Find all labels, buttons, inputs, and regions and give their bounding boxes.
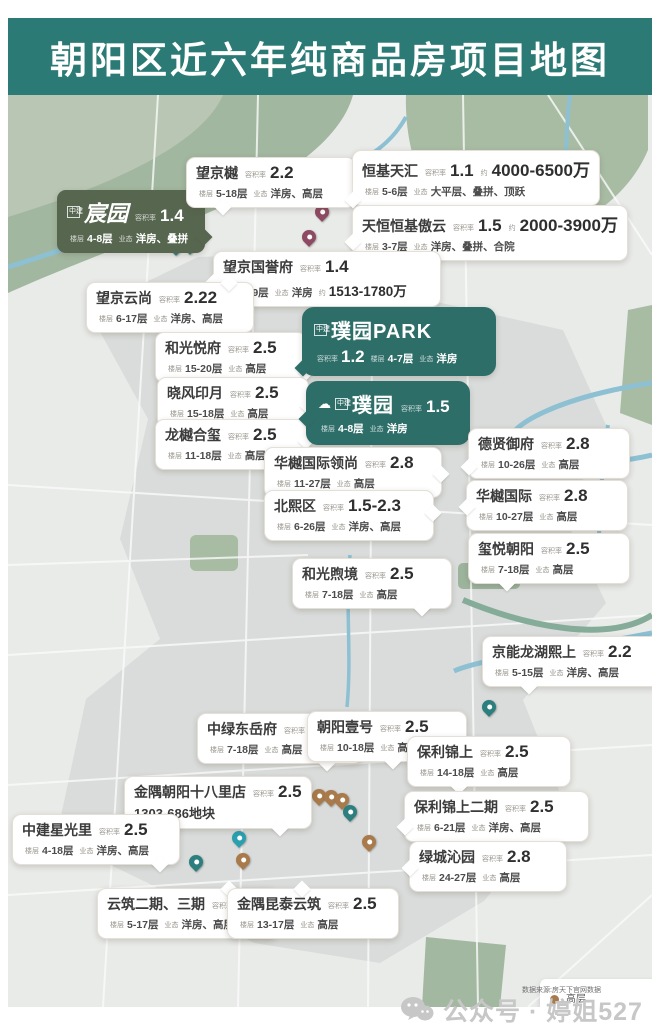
type-label: 业态 — [154, 314, 168, 324]
floors-label: 楼层 — [479, 512, 493, 522]
project-name: 晓风印月 — [167, 383, 223, 403]
far-value: 1.1 — [450, 161, 474, 181]
project-title-row: 金隅昆泰云筑容积率2.5 — [237, 894, 389, 914]
type-value: 高层 — [553, 562, 574, 577]
floors-label: 楼层 — [99, 314, 113, 324]
far-value: 2.5 — [253, 338, 277, 358]
far-value: 2.8 — [507, 847, 531, 867]
park-area — [190, 535, 238, 571]
project-spec-row: 楼层7-18层业态高层 — [302, 587, 442, 602]
type-value: 大平层、叠拼、顶跃 — [431, 184, 526, 199]
project-title-row: 朝阳壹号容积率2.5 — [317, 717, 457, 737]
type-label: 业态 — [119, 234, 133, 244]
floors-label: 楼层 — [70, 234, 84, 244]
floors-value: 6-26层 — [294, 519, 326, 534]
project-title-row: 玺悦朝阳容积率2.5 — [478, 539, 620, 559]
project-callout[interactable]: 金隅昆泰云筑容积率2.5楼层13-17层业态高层 — [227, 888, 399, 939]
type-value: 洋房 — [436, 351, 457, 366]
far-label: 容积率 — [365, 460, 386, 470]
project-spec-row: 楼层4-8层业态洋房 — [318, 421, 458, 436]
far-value: 2.5 — [530, 797, 554, 817]
project-title-row: 绿城沁园容积率2.8 — [419, 847, 557, 867]
far-label: 容积率 — [425, 168, 446, 178]
floors-label: 楼层 — [481, 565, 495, 575]
floors-label: 楼层 — [481, 460, 495, 470]
cloud-icon: ☁ — [318, 396, 331, 412]
project-callout[interactable]: 德贤御府容积率2.8楼层10-26层业态高层 — [468, 428, 630, 479]
project-title-row: 华樾国际容积率2.8 — [476, 486, 618, 506]
project-spec-row: 楼层4-18层业态洋房、高层 — [22, 843, 170, 858]
far-label: 容积率 — [300, 264, 321, 274]
project-title-row: 德贤御府容积率2.8 — [478, 434, 620, 454]
floors-label: 楼层 — [321, 424, 335, 434]
far-label: 容积率 — [401, 404, 422, 414]
project-name: 天恒恒基傲云 — [362, 216, 446, 236]
project-name: 和光煦境 — [302, 564, 358, 584]
project-spec-row: 楼层24-27层业态高层 — [419, 870, 557, 885]
floors-label: 楼层 — [25, 846, 39, 856]
far-value: 2.5 — [566, 539, 590, 559]
project-spec-row: 楼层6-26层业态洋房、高层 — [274, 519, 424, 534]
floors-label: 楼层 — [199, 189, 213, 199]
type-value: 洋房、高层 — [349, 519, 402, 534]
project-title-row: 望京樾容积率2.2 — [196, 163, 346, 183]
wechat-icon — [400, 996, 434, 1024]
floors-value: 7-18层 — [227, 742, 259, 757]
far-label: 容积率 — [135, 213, 156, 223]
project-name: 绿城沁园 — [419, 847, 475, 867]
far-label: 容积率 — [228, 345, 249, 355]
project-title-row: 天恒恒基傲云容积率1.5约2000-3900万 — [362, 211, 618, 236]
far-value: 2.8 — [390, 453, 414, 473]
type-label: 业态 — [80, 846, 94, 856]
project-name: 和光悦府 — [165, 338, 221, 358]
project-callout[interactable]: 绿城沁园容积率2.8楼层24-27层业态高层 — [409, 841, 567, 892]
project-name: 中建星光里 — [22, 820, 92, 840]
project-spec-row: 楼层6-21层业态洋房、高层 — [414, 820, 579, 835]
project-title-row: 中建璞园PARK — [314, 315, 484, 344]
far-value: 1.5 — [478, 216, 502, 236]
far-value: 2.5 — [124, 820, 148, 840]
type-value: 洋房、高层 — [489, 820, 542, 835]
far-label: 容积率 — [159, 295, 180, 305]
project-title-row: 京能龙湖熙上容积率2.2 — [492, 642, 652, 662]
type-label: 业态 — [539, 512, 553, 522]
type-value: 高层 — [497, 765, 518, 780]
project-title-row: 恒基天汇容积率1.1约4000-6500万 — [362, 156, 590, 181]
floors-label: 楼层 — [371, 354, 385, 364]
type-value: 高层 — [377, 587, 398, 602]
page: 朝阳区近六年纯商品房项目地图 — [0, 0, 660, 1033]
type-label: 业态 — [332, 522, 346, 532]
project-title-row: 和光悦府容积率2.5 — [165, 338, 297, 358]
project-name: 金隅昆泰云筑 — [237, 894, 321, 914]
project-spec-row: 楼层10-27层业态高层 — [476, 509, 618, 524]
far-value: 2.8 — [564, 486, 588, 506]
far-label: 容积率 — [253, 789, 274, 799]
type-label: 业态 — [380, 743, 394, 753]
project-spec-row: 楼层10-26层业态高层 — [478, 457, 620, 472]
type-value: 高层 — [317, 917, 338, 932]
project-callout[interactable]: 京能龙湖熙上容积率2.2楼层5-15层业态洋房、高层 — [482, 636, 652, 687]
project-name: 云筑二期、三期 — [107, 894, 205, 914]
project-name: 望京云尚 — [96, 288, 152, 308]
floors-value: 5-18层 — [216, 186, 248, 201]
type-value: 高层 — [556, 509, 577, 524]
project-spec-row: 容积率1.2楼层4-7层业态洋房 — [314, 347, 484, 367]
project-title-row: 北熙区容积率1.5-2.3 — [274, 496, 424, 516]
type-label: 业态 — [414, 187, 428, 197]
far-label: 容积率 — [328, 901, 349, 911]
project-title-row: 保利锦上二期容积率2.5 — [414, 797, 579, 817]
project-title-row: 望京国誉府容积率1.4 — [223, 257, 431, 277]
project-spec-row: 楼层11-27层业态高层 — [274, 476, 432, 491]
approx-label: 约 — [481, 168, 488, 178]
far-value: 2.5 — [255, 383, 279, 403]
floors-value: 5-15层 — [512, 665, 544, 680]
project-name: 保利锦上 — [417, 742, 473, 762]
project-name: 华樾国际 — [476, 486, 532, 506]
floors-label: 楼层 — [210, 745, 224, 755]
project-callout[interactable]: 望京云尚容积率2.22楼层6-17层业态洋房、高层 — [86, 282, 254, 333]
type-label: 业态 — [254, 189, 268, 199]
far-value: 2.2 — [608, 642, 632, 662]
floors-label: 楼层 — [240, 920, 254, 930]
project-name: 德贤御府 — [478, 434, 534, 454]
project-callout[interactable]: 和光悦府容积率2.5楼层15-20层业态高层 — [155, 332, 307, 383]
far-value: 2.5 — [278, 782, 302, 802]
type-value: 洋房 — [292, 285, 313, 300]
project-name: 华樾国际领尚 — [274, 453, 358, 473]
project-spec-row: 楼层5-18层业态洋房、高层 — [196, 186, 346, 201]
project-name: 朝阳壹号 — [317, 717, 373, 737]
project-spec-row: 楼层6-17层业态洋房、高层 — [96, 311, 244, 326]
price-value: 2000-3900万 — [520, 211, 618, 236]
type-label: 业态 — [480, 768, 494, 778]
type-label: 业态 — [472, 823, 486, 833]
project-name: 璞园PARK — [331, 315, 432, 344]
type-label: 业态 — [536, 565, 550, 575]
far-value: 1.5-2.3 — [348, 496, 401, 516]
far-label: 容积率 — [365, 571, 386, 581]
watermark: 公众号 · 婷姐527 — [400, 992, 643, 1028]
far-label: 容积率 — [480, 749, 501, 759]
far-label: 容积率 — [541, 441, 562, 451]
type-label: 业态 — [230, 409, 244, 419]
type-label: 业态 — [165, 920, 179, 930]
floors-label: 楼层 — [420, 768, 434, 778]
floors-label: 楼层 — [422, 873, 436, 883]
project-spec-row: 楼层8-9层业态洋房约1513-1780万 — [223, 280, 431, 300]
project-callout[interactable]: 中建宸园容积率1.4楼层4-8层业态洋房、叠拼 — [57, 190, 205, 253]
floors-value: 11-18层 — [185, 448, 222, 463]
project-spec-row: 楼层13-17层业态高层 — [237, 917, 389, 932]
project-name: 北熙区 — [274, 496, 316, 516]
floors-label: 楼层 — [277, 522, 291, 532]
far-label: 容积率 — [539, 493, 560, 503]
type-label: 业态 — [482, 873, 496, 883]
floors-value: 10-26层 — [498, 457, 535, 472]
price-value: 1513-1780万 — [329, 280, 407, 300]
project-title-row: 中建宸园容积率1.4 — [67, 196, 195, 228]
project-title-row: 金隅朝阳十八里店容积率2.5 — [134, 782, 302, 802]
project-name: 玺悦朝阳 — [478, 539, 534, 559]
approx-label: 约 — [319, 288, 326, 298]
floors-value: 7-18层 — [322, 587, 354, 602]
type-label: 业态 — [265, 745, 279, 755]
project-title-row: 华樾国际领尚容积率2.8 — [274, 453, 432, 473]
far-label: 容积率 — [323, 503, 344, 513]
type-value: 高层 — [558, 457, 579, 472]
floors-value: 6-21层 — [434, 820, 466, 835]
project-name: 京能龙湖熙上 — [492, 642, 576, 662]
type-label: 业态 — [337, 479, 351, 489]
type-label: 业态 — [419, 354, 433, 364]
project-spec-row: 楼层4-8层业态洋房、叠拼 — [67, 231, 195, 246]
floors-value: 4-8层 — [87, 231, 113, 246]
floors-label: 楼层 — [417, 823, 431, 833]
far-value: 2.5 — [353, 894, 377, 914]
floors-label: 楼层 — [320, 743, 334, 753]
type-value: 洋房 — [387, 421, 408, 436]
developer-logo: 中建 — [67, 206, 80, 218]
type-label: 业态 — [550, 668, 564, 678]
project-callout[interactable]: ☁中建璞园容积率1.5楼层4-8层业态洋房 — [306, 381, 470, 445]
floors-value: 6-17层 — [116, 311, 148, 326]
floors-label: 楼层 — [495, 668, 509, 678]
project-title-row: 龙樾合玺容积率2.5 — [165, 425, 297, 445]
type-label: 业态 — [228, 364, 242, 374]
type-label: 业态 — [275, 288, 289, 298]
type-label: 业态 — [360, 590, 374, 600]
floors-value: 10-27层 — [496, 509, 533, 524]
approx-label: 约 — [509, 223, 516, 233]
floors-value: 5-6层 — [382, 184, 408, 199]
project-callout[interactable]: 中建璞园PARK容积率1.2楼层4-7层业态洋房 — [302, 307, 496, 376]
floors-value: 5-17层 — [127, 917, 159, 932]
page-title: 朝阳区近六年纯商品房项目地图 — [50, 30, 610, 84]
floors-value: 4-8层 — [338, 421, 364, 436]
floors-label: 楼层 — [170, 409, 184, 419]
floors-label: 楼层 — [277, 479, 291, 489]
far-value: 2.8 — [566, 434, 590, 454]
far-label: 容积率 — [99, 827, 120, 837]
project-callout[interactable]: 保利锦上二期容积率2.5楼层6-21层业态洋房、高层 — [404, 791, 589, 842]
project-name: 望京国誉府 — [223, 257, 293, 277]
watermark-text: 公众号 · 婷姐527 — [443, 992, 643, 1028]
data-source-note: 数据来源:房天下官网数据 — [522, 985, 601, 995]
floors-value: 13-17层 — [257, 917, 294, 932]
price-value: 4000-6500万 — [492, 156, 590, 181]
far-value: 2.5 — [253, 425, 277, 445]
type-value: 洋房、高层 — [271, 186, 324, 201]
floors-label: 楼层 — [110, 920, 124, 930]
far-label: 容积率 — [583, 649, 604, 659]
project-spec-row: 楼层15-20层业态高层 — [165, 361, 297, 376]
type-label: 业态 — [300, 920, 314, 930]
far-value: 1.4 — [160, 206, 184, 226]
far-value: 2.2 — [270, 163, 294, 183]
type-value: 洋房、高层 — [171, 311, 224, 326]
type-value: 洋房、叠拼、合院 — [431, 239, 515, 254]
project-callout[interactable]: 保利锦上容积率2.5楼层14-18层业态高层 — [407, 736, 571, 787]
project-name: 望京樾 — [196, 163, 238, 183]
developer-logo: 中建 — [314, 324, 327, 336]
far-value: 2.22 — [184, 288, 217, 308]
far-label: 容积率 — [453, 223, 474, 233]
project-spec-row: 楼层5-15层业态洋房、高层 — [492, 665, 652, 680]
far-label: 容积率 — [317, 354, 338, 364]
project-title-row: 和光煦境容积率2.5 — [302, 564, 442, 584]
far-value: 2.5 — [390, 564, 414, 584]
far-value: 2.5 — [405, 717, 429, 737]
type-value: 洋房、叠拼 — [136, 231, 189, 246]
project-name: 保利锦上二期 — [414, 797, 498, 817]
title-bar: 朝阳区近六年纯商品房项目地图 — [8, 18, 652, 95]
project-title-row: 保利锦上容积率2.5 — [417, 742, 561, 762]
far-value: 1.5 — [426, 397, 450, 417]
floors-value: 4-7层 — [388, 351, 414, 366]
project-title-row: 晓风印月容积率2.5 — [167, 383, 299, 403]
type-value: 高层 — [354, 476, 375, 491]
project-spec-row: 楼层14-18层业态高层 — [417, 765, 561, 780]
far-value: 1.2 — [341, 347, 365, 367]
project-callout[interactable]: 恒基天汇容积率1.1约4000-6500万楼层5-6层业态大平层、叠拼、顶跃 — [352, 150, 600, 206]
project-callout[interactable]: 华樾国际容积率2.8楼层10-27层业态高层 — [466, 480, 628, 531]
floors-value: 24-27层 — [439, 870, 476, 885]
project-spec-row: 楼层7-18层业态高层 — [478, 562, 620, 577]
far-label: 容积率 — [541, 546, 562, 556]
project-callout[interactable]: 和光煦境容积率2.5楼层7-18层业态高层 — [292, 558, 452, 609]
far-label: 容积率 — [284, 726, 305, 736]
project-title-row: 中建星光里容积率2.5 — [22, 820, 170, 840]
project-callout[interactable]: 望京樾容积率2.2楼层5-18层业态洋房、高层 — [186, 157, 356, 208]
project-title-row: 望京云尚容积率2.22 — [96, 288, 244, 308]
floors-label: 楼层 — [168, 364, 182, 374]
project-name: 恒基天汇 — [362, 161, 418, 181]
map-canvas[interactable]: 中建宸园容积率1.4楼层4-8层业态洋房、叠拼望京樾容积率2.2楼层5-18层业… — [8, 95, 652, 1007]
project-callout[interactable]: 中建星光里容积率2.5楼层4-18层业态洋房、高层 — [12, 814, 180, 865]
far-label: 容积率 — [380, 724, 401, 734]
type-label: 业态 — [541, 460, 555, 470]
far-label: 容积率 — [482, 854, 503, 864]
far-label: 容积率 — [230, 390, 251, 400]
type-label: 业态 — [370, 424, 384, 434]
floors-label: 楼层 — [305, 590, 319, 600]
project-name: 璞园 — [352, 389, 394, 418]
type-value: 高层 — [245, 448, 266, 463]
floors-value: 14-18层 — [437, 765, 474, 780]
project-name: 中绿东岳府 — [207, 719, 277, 739]
project-callout[interactable]: 玺悦朝阳容积率2.5楼层7-18层业态高层 — [468, 533, 630, 584]
type-value: 洋房、高层 — [97, 843, 150, 858]
floors-value: 4-18层 — [42, 843, 74, 858]
project-name: 龙樾合玺 — [165, 425, 221, 445]
developer-logo: 中建 — [335, 398, 348, 410]
far-value: 1.4 — [325, 257, 349, 277]
floors-label: 楼层 — [365, 187, 379, 197]
type-value: 高层 — [282, 742, 303, 757]
floors-label: 楼层 — [168, 451, 182, 461]
project-title-row: ☁中建璞园容积率1.5 — [318, 389, 458, 418]
floors-value: 15-20层 — [185, 361, 222, 376]
type-value: 洋房、高层 — [567, 665, 620, 680]
far-label: 容积率 — [505, 804, 526, 814]
type-label: 业态 — [228, 451, 242, 461]
project-spec-row: 楼层5-6层业态大平层、叠拼、顶跃 — [362, 184, 590, 199]
project-name: 宸园 — [84, 196, 128, 228]
far-value: 2.5 — [505, 742, 529, 762]
far-label: 容积率 — [228, 432, 249, 442]
type-value: 高层 — [245, 361, 266, 376]
floors-value: 11-27层 — [294, 476, 331, 491]
type-value: 高层 — [499, 870, 520, 885]
far-label: 容积率 — [245, 170, 266, 180]
project-name: 金隅朝阳十八里店 — [134, 782, 246, 802]
project-callout[interactable]: 北熙区容积率1.5-2.3楼层6-26层业态洋房、高层 — [264, 490, 434, 541]
floors-value: 7-18层 — [498, 562, 530, 577]
floors-value: 10-18层 — [337, 740, 374, 755]
